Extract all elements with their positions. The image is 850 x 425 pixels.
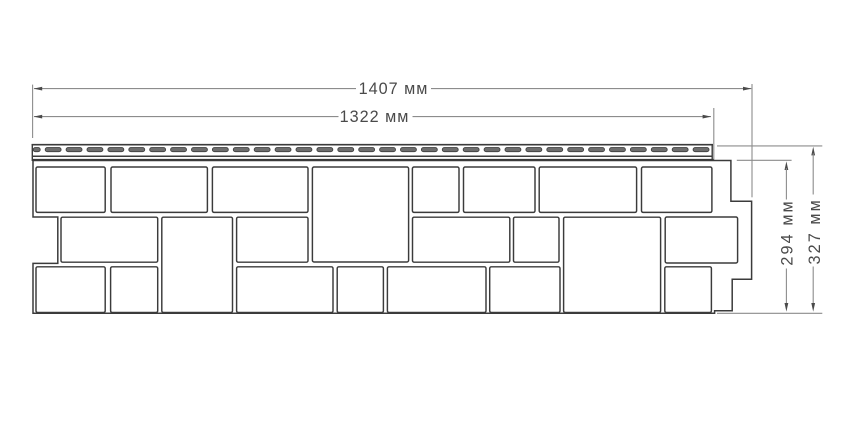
svg-text:327 мм: 327 мм (806, 198, 824, 264)
svg-text:1407 мм: 1407 мм (359, 80, 429, 98)
svg-text:294 мм: 294 мм (779, 199, 797, 265)
svg-text:1322 мм: 1322 мм (340, 108, 410, 126)
